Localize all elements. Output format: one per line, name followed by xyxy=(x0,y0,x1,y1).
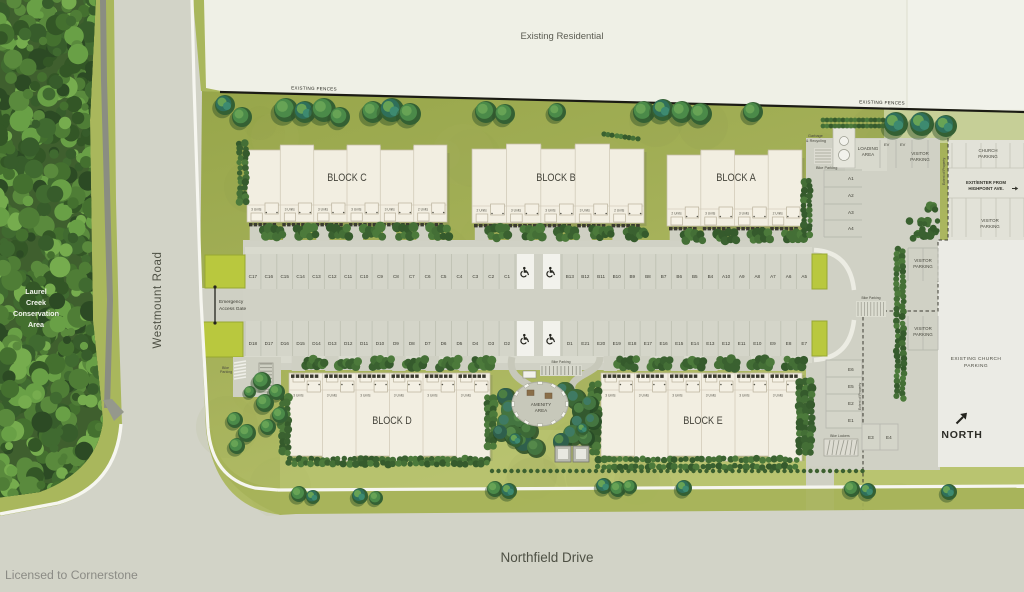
svg-text:E1: E1 xyxy=(848,418,854,423)
svg-text:VISITOR: VISITOR xyxy=(911,151,929,156)
svg-text:B5: B5 xyxy=(692,274,698,279)
svg-text:3 Units: 3 Units xyxy=(427,394,438,398)
svg-text:Garbage: Garbage xyxy=(808,134,823,138)
svg-text:E18: E18 xyxy=(628,341,637,346)
svg-text:B12: B12 xyxy=(581,274,590,279)
svg-text:C2: C2 xyxy=(488,274,494,279)
svg-text:3 Units: 3 Units xyxy=(360,394,371,398)
svg-text:3 Units: 3 Units xyxy=(639,394,650,398)
svg-text:2 Units: 2 Units xyxy=(773,212,784,216)
svg-text:A4: A4 xyxy=(848,226,854,231)
svg-text:2 Units: 2 Units xyxy=(671,212,682,216)
svg-text:Bike Parking: Bike Parking xyxy=(816,166,837,170)
svg-text:B11: B11 xyxy=(597,274,605,279)
svg-text:E14: E14 xyxy=(691,341,700,346)
svg-text:C14: C14 xyxy=(296,274,305,279)
svg-text:A6: A6 xyxy=(786,274,792,279)
svg-text:PARKING: PARKING xyxy=(978,154,998,159)
svg-text:Bike Parking: Bike Parking xyxy=(551,360,570,364)
svg-text:E2: E2 xyxy=(848,401,854,406)
svg-text:PARKING: PARKING xyxy=(913,332,933,337)
svg-text:Bike Parking: Bike Parking xyxy=(861,296,880,300)
svg-text:D14: D14 xyxy=(312,341,321,346)
svg-text:2 Units: 2 Units xyxy=(476,209,487,213)
svg-text:A7: A7 xyxy=(770,274,776,279)
svg-text:Creek: Creek xyxy=(26,298,46,307)
svg-text:D1: D1 xyxy=(567,341,573,346)
svg-text:E13: E13 xyxy=(706,341,715,346)
svg-text:A2: A2 xyxy=(848,193,854,198)
svg-text:E9: E9 xyxy=(770,341,776,346)
svg-text:3 Units: 3 Units xyxy=(251,208,262,212)
svg-text:C11: C11 xyxy=(344,274,353,279)
svg-text:VISITOR: VISITOR xyxy=(981,218,999,223)
svg-text:3 Units: 3 Units xyxy=(580,209,591,213)
svg-text:E11: E11 xyxy=(738,341,746,346)
svg-text:B7: B7 xyxy=(661,274,667,279)
svg-text:D9: D9 xyxy=(393,341,399,346)
svg-text:E16: E16 xyxy=(660,341,669,346)
svg-text:C1: C1 xyxy=(504,274,510,279)
svg-text:C10: C10 xyxy=(360,274,369,279)
svg-text:3 Units: 3 Units xyxy=(672,394,683,398)
svg-text:D11: D11 xyxy=(360,341,369,346)
svg-text:AMENITY: AMENITY xyxy=(531,402,551,407)
svg-text:D4: D4 xyxy=(472,341,478,346)
svg-text:B8: B8 xyxy=(645,274,651,279)
svg-text:VISITOR: VISITOR xyxy=(914,326,932,331)
svg-text:Northfield Drive: Northfield Drive xyxy=(500,550,593,565)
svg-text:PARKING: PARKING xyxy=(964,363,988,369)
svg-text:Parking: Parking xyxy=(220,370,232,374)
svg-text:D2: D2 xyxy=(504,341,510,346)
svg-text:3 Units: 3 Units xyxy=(385,208,396,212)
svg-text:E10: E10 xyxy=(753,341,762,346)
svg-text:BLOCK E: BLOCK E xyxy=(683,415,723,427)
svg-text:EV: EV xyxy=(900,142,906,147)
svg-text:C8: C8 xyxy=(393,274,399,279)
svg-text:Licensed to Cornerstone: Licensed to Cornerstone xyxy=(5,568,138,582)
svg-text:Extent of Property: Extent of Property xyxy=(858,383,862,410)
svg-text:C17: C17 xyxy=(249,274,258,279)
svg-text:C6: C6 xyxy=(425,274,431,279)
svg-text:Access Gate: Access Gate xyxy=(219,306,247,312)
svg-text:D7: D7 xyxy=(425,341,431,346)
svg-text:D6: D6 xyxy=(441,341,447,346)
svg-text:NORTH: NORTH xyxy=(941,429,982,441)
svg-text:3 Units: 3 Units xyxy=(293,394,304,398)
svg-text:B6: B6 xyxy=(676,274,682,279)
svg-text:3 Units: 3 Units xyxy=(706,394,717,398)
svg-text:3 Units: 3 Units xyxy=(545,209,556,213)
svg-text:3 Units: 3 Units xyxy=(739,394,750,398)
svg-text:3 Units: 3 Units xyxy=(394,394,405,398)
svg-text:A10: A10 xyxy=(722,274,731,279)
svg-text:C15: C15 xyxy=(280,274,289,279)
svg-text:EXISTING CHURCH: EXISTING CHURCH xyxy=(951,356,1002,362)
svg-text:A5: A5 xyxy=(801,274,807,279)
svg-text:C16: C16 xyxy=(265,274,274,279)
svg-text:3 Units: 3 Units xyxy=(705,212,716,216)
svg-text:Existing Residential: Existing Residential xyxy=(521,31,604,42)
svg-text:E5: E5 xyxy=(848,384,854,389)
svg-text:PARKING: PARKING xyxy=(910,157,930,162)
svg-text:E15: E15 xyxy=(675,341,684,346)
svg-text:Emergency: Emergency xyxy=(219,299,244,305)
svg-text:B4: B4 xyxy=(708,274,714,279)
svg-text:3 Units: 3 Units xyxy=(285,208,296,212)
svg-text:C9: C9 xyxy=(377,274,383,279)
svg-text:3 Units: 3 Units xyxy=(739,212,750,216)
svg-text:D8: D8 xyxy=(409,341,415,346)
svg-text:C7: C7 xyxy=(409,274,415,279)
svg-text:E3: E3 xyxy=(868,435,874,440)
svg-text:Extent of Property: Extent of Property xyxy=(942,158,946,185)
svg-text:C5: C5 xyxy=(441,274,447,279)
svg-text:EXIT/ENTER FROM: EXIT/ENTER FROM xyxy=(966,180,1006,185)
svg-text:3 Units: 3 Units xyxy=(773,394,784,398)
svg-text:PARKING: PARKING xyxy=(913,264,933,269)
svg-text:B9: B9 xyxy=(629,274,635,279)
svg-text:E7: E7 xyxy=(801,341,807,346)
svg-text:EV: EV xyxy=(884,142,890,147)
svg-text:AREA: AREA xyxy=(862,152,875,157)
svg-text:D13: D13 xyxy=(328,341,337,346)
svg-text:BLOCK A: BLOCK A xyxy=(716,172,756,184)
svg-text:Conservation: Conservation xyxy=(13,309,59,318)
svg-text:3 Units: 3 Units xyxy=(351,208,362,212)
svg-text:A3: A3 xyxy=(848,210,854,215)
svg-text:BLOCK D: BLOCK D xyxy=(372,415,412,427)
svg-text:Area: Area xyxy=(28,320,45,329)
svg-text:LOADING: LOADING xyxy=(858,146,879,151)
svg-text:3 Units: 3 Units xyxy=(318,208,329,212)
svg-text:C4: C4 xyxy=(456,274,462,279)
svg-text:A1: A1 xyxy=(848,176,854,181)
svg-text:3 Units: 3 Units xyxy=(461,394,472,398)
svg-text:E17: E17 xyxy=(644,341,653,346)
svg-text:E12: E12 xyxy=(722,341,731,346)
svg-text:D15: D15 xyxy=(296,341,305,346)
svg-text:VISITOR: VISITOR xyxy=(914,258,932,263)
svg-text:E8: E8 xyxy=(786,341,792,346)
svg-text:D16: D16 xyxy=(280,341,289,346)
svg-text:E21: E21 xyxy=(581,341,590,346)
svg-text:CHURCH: CHURCH xyxy=(978,148,997,153)
svg-text:Bike Lockers: Bike Lockers xyxy=(830,434,850,438)
svg-text:D12: D12 xyxy=(344,341,353,346)
svg-text:E6: E6 xyxy=(848,367,854,372)
svg-text:AREA: AREA xyxy=(535,408,548,413)
svg-text:& Recycling: & Recycling xyxy=(806,139,826,143)
svg-text:E20: E20 xyxy=(597,341,606,346)
svg-text:D17: D17 xyxy=(265,341,274,346)
svg-text:D10: D10 xyxy=(376,341,385,346)
svg-text:D3: D3 xyxy=(488,341,494,346)
svg-text:B13: B13 xyxy=(566,274,575,279)
svg-text:BLOCK B: BLOCK B xyxy=(536,172,576,184)
svg-text:BLOCK C: BLOCK C xyxy=(327,172,367,184)
svg-text:3 Units: 3 Units xyxy=(327,394,338,398)
svg-text:3 Units: 3 Units xyxy=(511,209,522,213)
svg-text:C12: C12 xyxy=(328,274,337,279)
svg-text:E19: E19 xyxy=(613,341,622,346)
svg-text:B10: B10 xyxy=(613,274,622,279)
svg-text:D18: D18 xyxy=(249,341,258,346)
svg-text:D5: D5 xyxy=(456,341,462,346)
svg-text:3 Units: 3 Units xyxy=(605,394,616,398)
svg-text:C13: C13 xyxy=(312,274,321,279)
svg-text:HIGHPOINT AVE.: HIGHPOINT AVE. xyxy=(968,186,1003,191)
svg-text:E4: E4 xyxy=(886,435,892,440)
svg-text:C3: C3 xyxy=(472,274,478,279)
svg-text:2 Units: 2 Units xyxy=(418,208,429,212)
svg-text:Westmount Road: Westmount Road xyxy=(152,251,164,348)
svg-text:A8: A8 xyxy=(754,274,760,279)
svg-text:PARKING: PARKING xyxy=(980,224,1000,229)
svg-text:A9: A9 xyxy=(739,274,745,279)
svg-text:Laurel: Laurel xyxy=(25,287,47,296)
svg-text:2 Units: 2 Units xyxy=(614,209,625,213)
